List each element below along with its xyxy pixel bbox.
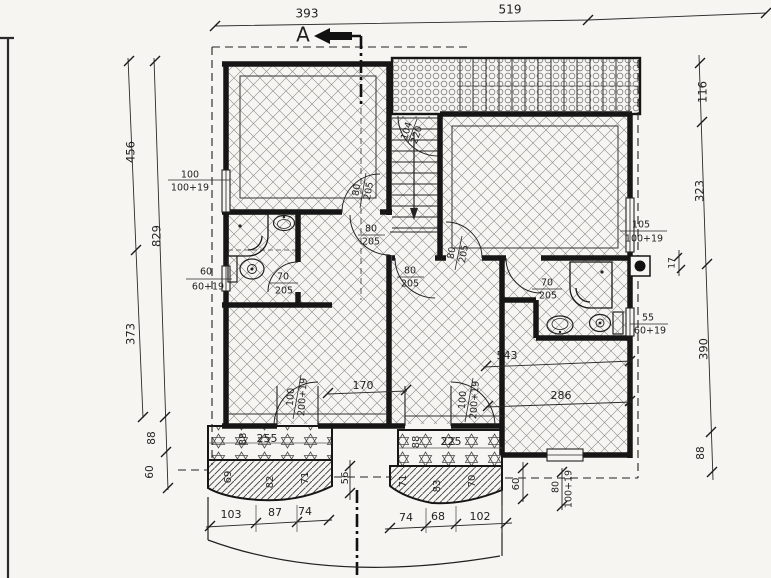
dim-interior-170: 170	[353, 379, 374, 392]
balcony-left-edge-69: 69	[223, 471, 234, 484]
dim-right-323: 323	[693, 180, 707, 202]
window-right-mid-width: 55	[642, 313, 654, 324]
dim-left-456: 456	[124, 141, 138, 163]
balcony-right-edge-71: 71	[398, 475, 409, 488]
door-balcony-right-width: 100	[457, 391, 469, 410]
dim-interior-543: 543	[497, 349, 518, 362]
dim-left-373: 373	[124, 323, 138, 345]
dim-left-829: 829	[150, 225, 164, 247]
dim-left-60: 60	[144, 465, 156, 478]
balcony-left-depth: 88	[238, 433, 249, 446]
window-right-mid-sill: 60+19	[634, 326, 666, 337]
door-stairs-height: 205	[362, 237, 380, 248]
balcony-right-edge-83: 83	[432, 480, 443, 493]
door-bath-left-height: 205	[275, 286, 293, 297]
dim-top-right: 519	[499, 3, 522, 17]
door-room-center-height: 205	[401, 279, 419, 290]
dim-bottom-left-87: 87	[268, 506, 282, 519]
door-room-center-width: 80	[404, 266, 416, 277]
dim-left-88: 88	[146, 431, 158, 444]
floorplan-drawing: 393 519 A 456 373 829 88 60 116 323 17 3…	[0, 0, 771, 578]
dim-bottom-right-68: 68	[431, 510, 445, 523]
shower-right-drain-icon	[600, 270, 603, 273]
window-left-mid-width: 60	[200, 267, 212, 278]
dim-right-116: 116	[696, 81, 710, 103]
dim-right-step-60: 60	[511, 478, 522, 491]
dim-bottom-right-74: 74	[399, 511, 413, 524]
door-stairs-width: 80	[365, 224, 377, 235]
dim-top-left: 393	[296, 7, 319, 21]
dim-right-390: 390	[697, 338, 711, 360]
balcony-left-width: 255	[257, 432, 278, 445]
dim-interior-286: 286	[551, 389, 572, 402]
window-left-top-sill: 100+19	[171, 183, 209, 194]
section-marker-label: A	[296, 23, 310, 47]
window-right-top-sill: 100+19	[625, 234, 663, 245]
washbasin-right-tap-icon	[559, 331, 561, 333]
window-left-mid-sill: 60+19	[192, 282, 224, 293]
dim-right-17: 17	[668, 257, 678, 268]
door-room-upper-width: 80	[351, 183, 364, 197]
balcony-right-width: 225	[441, 435, 462, 448]
shower-left-drain-icon	[238, 224, 241, 227]
washbasin-left-tap-icon	[283, 216, 285, 218]
section-arrow-icon	[314, 28, 352, 44]
door-bath-right-height: 205	[539, 291, 557, 302]
dim-gap-56: 56	[340, 472, 351, 485]
door-room-right-width: 80	[446, 246, 459, 260]
dim-bottom-right-102: 102	[470, 510, 491, 523]
dim-right-88: 88	[695, 446, 707, 459]
balcony-right-edge-70: 70	[467, 475, 478, 488]
dim-bottom-left-103: 103	[221, 508, 242, 521]
balcony-right-depth: 88	[411, 436, 422, 449]
dim-bottom-left-74: 74	[298, 505, 312, 518]
window-left-top-width: 100	[181, 170, 199, 181]
balcony-left-edge-82: 82	[265, 476, 276, 489]
window-bottom-right-sill: 100+19	[564, 470, 575, 508]
balcony-left-edge-71: 71	[300, 472, 311, 485]
scan-edge-marks	[0, 38, 14, 578]
window-right-top-width: 105	[632, 220, 650, 231]
door-bath-left-width: 70	[277, 272, 289, 283]
window-bottom-right-width: 80	[551, 481, 562, 493]
door-balcony-left-width: 100	[285, 388, 297, 407]
floorplan-scan: 393 519 A 456 373 829 88 60 116 323 17 3…	[0, 0, 771, 578]
door-bath-right-width: 70	[541, 278, 553, 289]
downpipe-icon	[635, 261, 646, 272]
